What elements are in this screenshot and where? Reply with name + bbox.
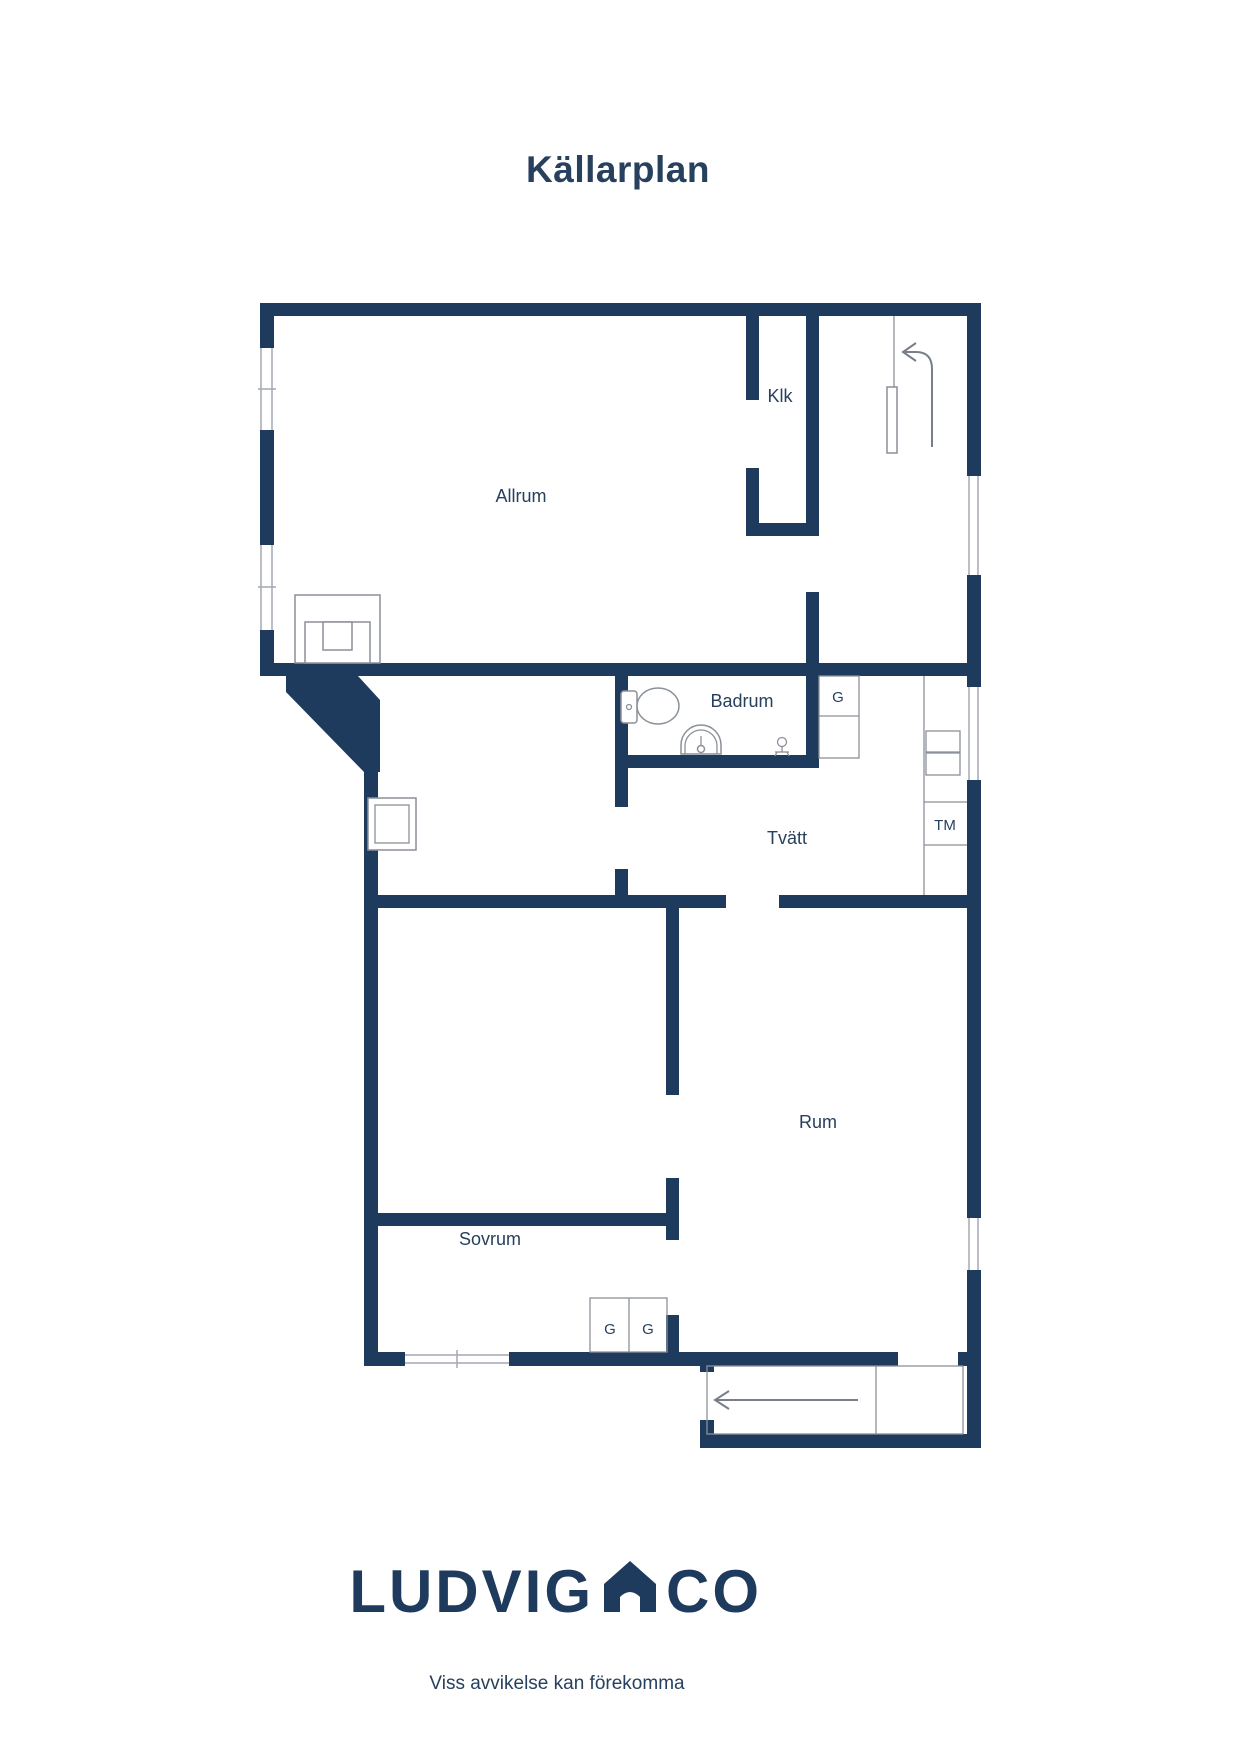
room-label-klk: Klk [767,386,793,406]
brand-text-right: CO [666,1558,762,1625]
toilet-icon [621,688,679,724]
fireplace-icon [295,595,380,663]
page-title: Källarplan [526,149,710,190]
room-label-allrum: Allrum [495,486,546,506]
closet-label-g-right: G [642,1321,654,1338]
wall-window-square-icon [368,798,416,850]
appliance-icon [926,753,960,775]
house-logo-icon [604,1561,656,1612]
floor-plan: Källarplan [0,0,1240,1754]
closet-label-g-left: G [604,1321,616,1338]
room-label-rum: Rum [799,1112,837,1132]
sink-icon [681,725,721,754]
closet-label-g-upper: G [832,689,844,706]
closet-label-tm: TM [934,817,956,834]
brand-logo: LUDVIG CO [349,1558,762,1625]
cabinet-strip [924,676,967,895]
room-label-badrum: Badrum [710,691,773,711]
stairs-up-arrow-icon [903,343,932,447]
stairs-down-arrow-icon [715,1391,858,1409]
floor-drain-icon [775,738,789,757]
brand-text-left: LUDVIG [349,1558,594,1625]
closet-outline [590,1298,667,1352]
room-label-sovrum: Sovrum [459,1229,521,1249]
appliance-icon [926,731,960,752]
stairs-up-icon [887,316,897,453]
disclaimer-text: Viss avvikelse kan förekomma [429,1673,685,1694]
room-label-tvatt: Tvätt [767,828,807,848]
